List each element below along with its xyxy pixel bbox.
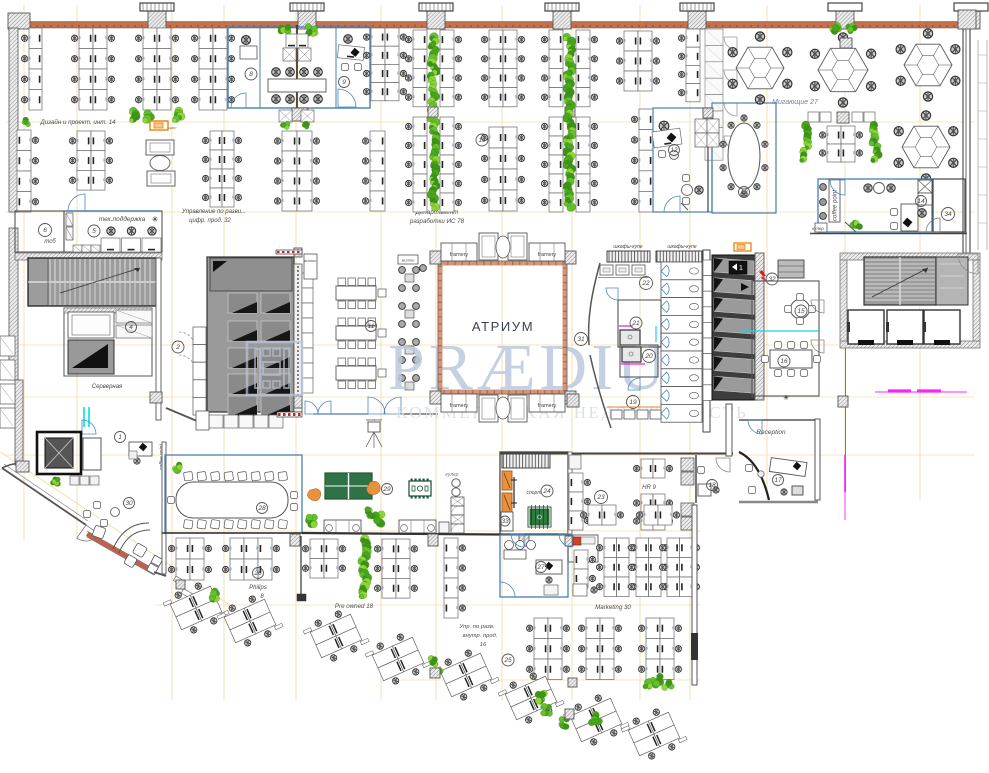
svg-text:13: 13 xyxy=(740,189,748,196)
svg-text:18: 18 xyxy=(708,482,716,489)
svg-text:22: 22 xyxy=(641,280,650,287)
svg-text:9: 9 xyxy=(342,79,346,86)
svg-text:coffee point: coffee point xyxy=(833,190,839,221)
svg-text:щит: щит xyxy=(168,125,178,130)
svg-text:2: 2 xyxy=(175,344,180,351)
svg-text:20: 20 xyxy=(644,353,653,360)
svg-text:шкафы-купе: шкафы-купе xyxy=(667,244,696,250)
svg-text:1: 1 xyxy=(739,265,743,272)
svg-text:Дизайн и проект. инт. 14: Дизайн и проект. инт. 14 xyxy=(39,119,116,126)
svg-text:милти: милти xyxy=(304,258,318,263)
svg-text:милти: милти xyxy=(402,258,416,263)
svg-text:16: 16 xyxy=(480,642,487,648)
svg-text:АТРИУМ: АТРИУМ xyxy=(472,319,534,334)
svg-text:1: 1 xyxy=(118,434,122,441)
svg-text:23: 23 xyxy=(596,494,605,501)
svg-text:24: 24 xyxy=(542,488,551,495)
svg-text:Reception: Reception xyxy=(756,429,786,436)
svg-text:Мигающие 27: Мигающие 27 xyxy=(772,99,819,106)
svg-text:8: 8 xyxy=(249,71,253,78)
svg-text:6: 6 xyxy=(43,227,47,234)
svg-text:тсб: тсб xyxy=(44,239,56,245)
svg-text:33: 33 xyxy=(501,518,509,525)
svg-text:спорт: спорт xyxy=(527,490,542,496)
svg-text:12: 12 xyxy=(670,147,678,154)
svg-text:30: 30 xyxy=(125,500,133,507)
svg-text:25: 25 xyxy=(503,657,512,664)
svg-text:28: 28 xyxy=(257,505,266,512)
svg-text:Серверная: Серверная xyxy=(92,384,123,390)
svg-text:Управление по разви...: Управление по разви... xyxy=(181,209,246,215)
svg-text:✳: ✳ xyxy=(783,394,789,402)
svg-text:проектор: проектор xyxy=(366,418,382,422)
svg-text:14: 14 xyxy=(917,198,925,205)
svg-text:внутр. прод.: внутр. прод. xyxy=(463,633,498,639)
svg-text:21: 21 xyxy=(631,320,640,327)
svg-text:framery: framery xyxy=(450,403,469,409)
svg-text:5: 5 xyxy=(92,228,96,235)
svg-text:15: 15 xyxy=(797,308,805,315)
svg-text:27: 27 xyxy=(536,564,545,571)
svg-text:34: 34 xyxy=(944,211,952,218)
svg-text:тех.поддержка: тех.поддержка xyxy=(99,215,146,223)
svg-text:32: 32 xyxy=(768,276,776,283)
svg-text:Marketing 30: Marketing 30 xyxy=(595,604,631,611)
svg-text:framery: framery xyxy=(450,252,469,258)
svg-text:26: 26 xyxy=(253,570,262,577)
svg-text:framery: framery xyxy=(538,403,557,409)
svg-text:цифр. прод. 32: цифр. прод. 32 xyxy=(189,218,231,224)
svg-text:Упр. по разв.: Упр. по разв. xyxy=(459,624,495,630)
svg-text:19: 19 xyxy=(629,399,637,406)
svg-text:✳: ✳ xyxy=(152,215,159,224)
svg-text:разработки ИС 78: разработки ИС 78 xyxy=(409,218,465,225)
svg-text:16: 16 xyxy=(780,358,788,365)
svg-text:framery: framery xyxy=(538,252,557,258)
svg-text:кулер: кулер xyxy=(812,226,824,231)
svg-text:17: 17 xyxy=(774,477,782,484)
svg-text:4: 4 xyxy=(129,324,133,331)
svg-text:11: 11 xyxy=(368,323,375,330)
svg-text:31: 31 xyxy=(577,336,585,343)
svg-text:кулер: кулер xyxy=(445,472,458,478)
svg-text:29: 29 xyxy=(382,486,391,493)
svg-text:Philips: Philips xyxy=(249,585,267,591)
svg-text:Pre owned 18: Pre owned 18 xyxy=(335,603,374,610)
svg-text:HR 9: HR 9 xyxy=(642,485,656,491)
svg-text:шкафы-купе: шкафы-купе xyxy=(613,244,642,250)
